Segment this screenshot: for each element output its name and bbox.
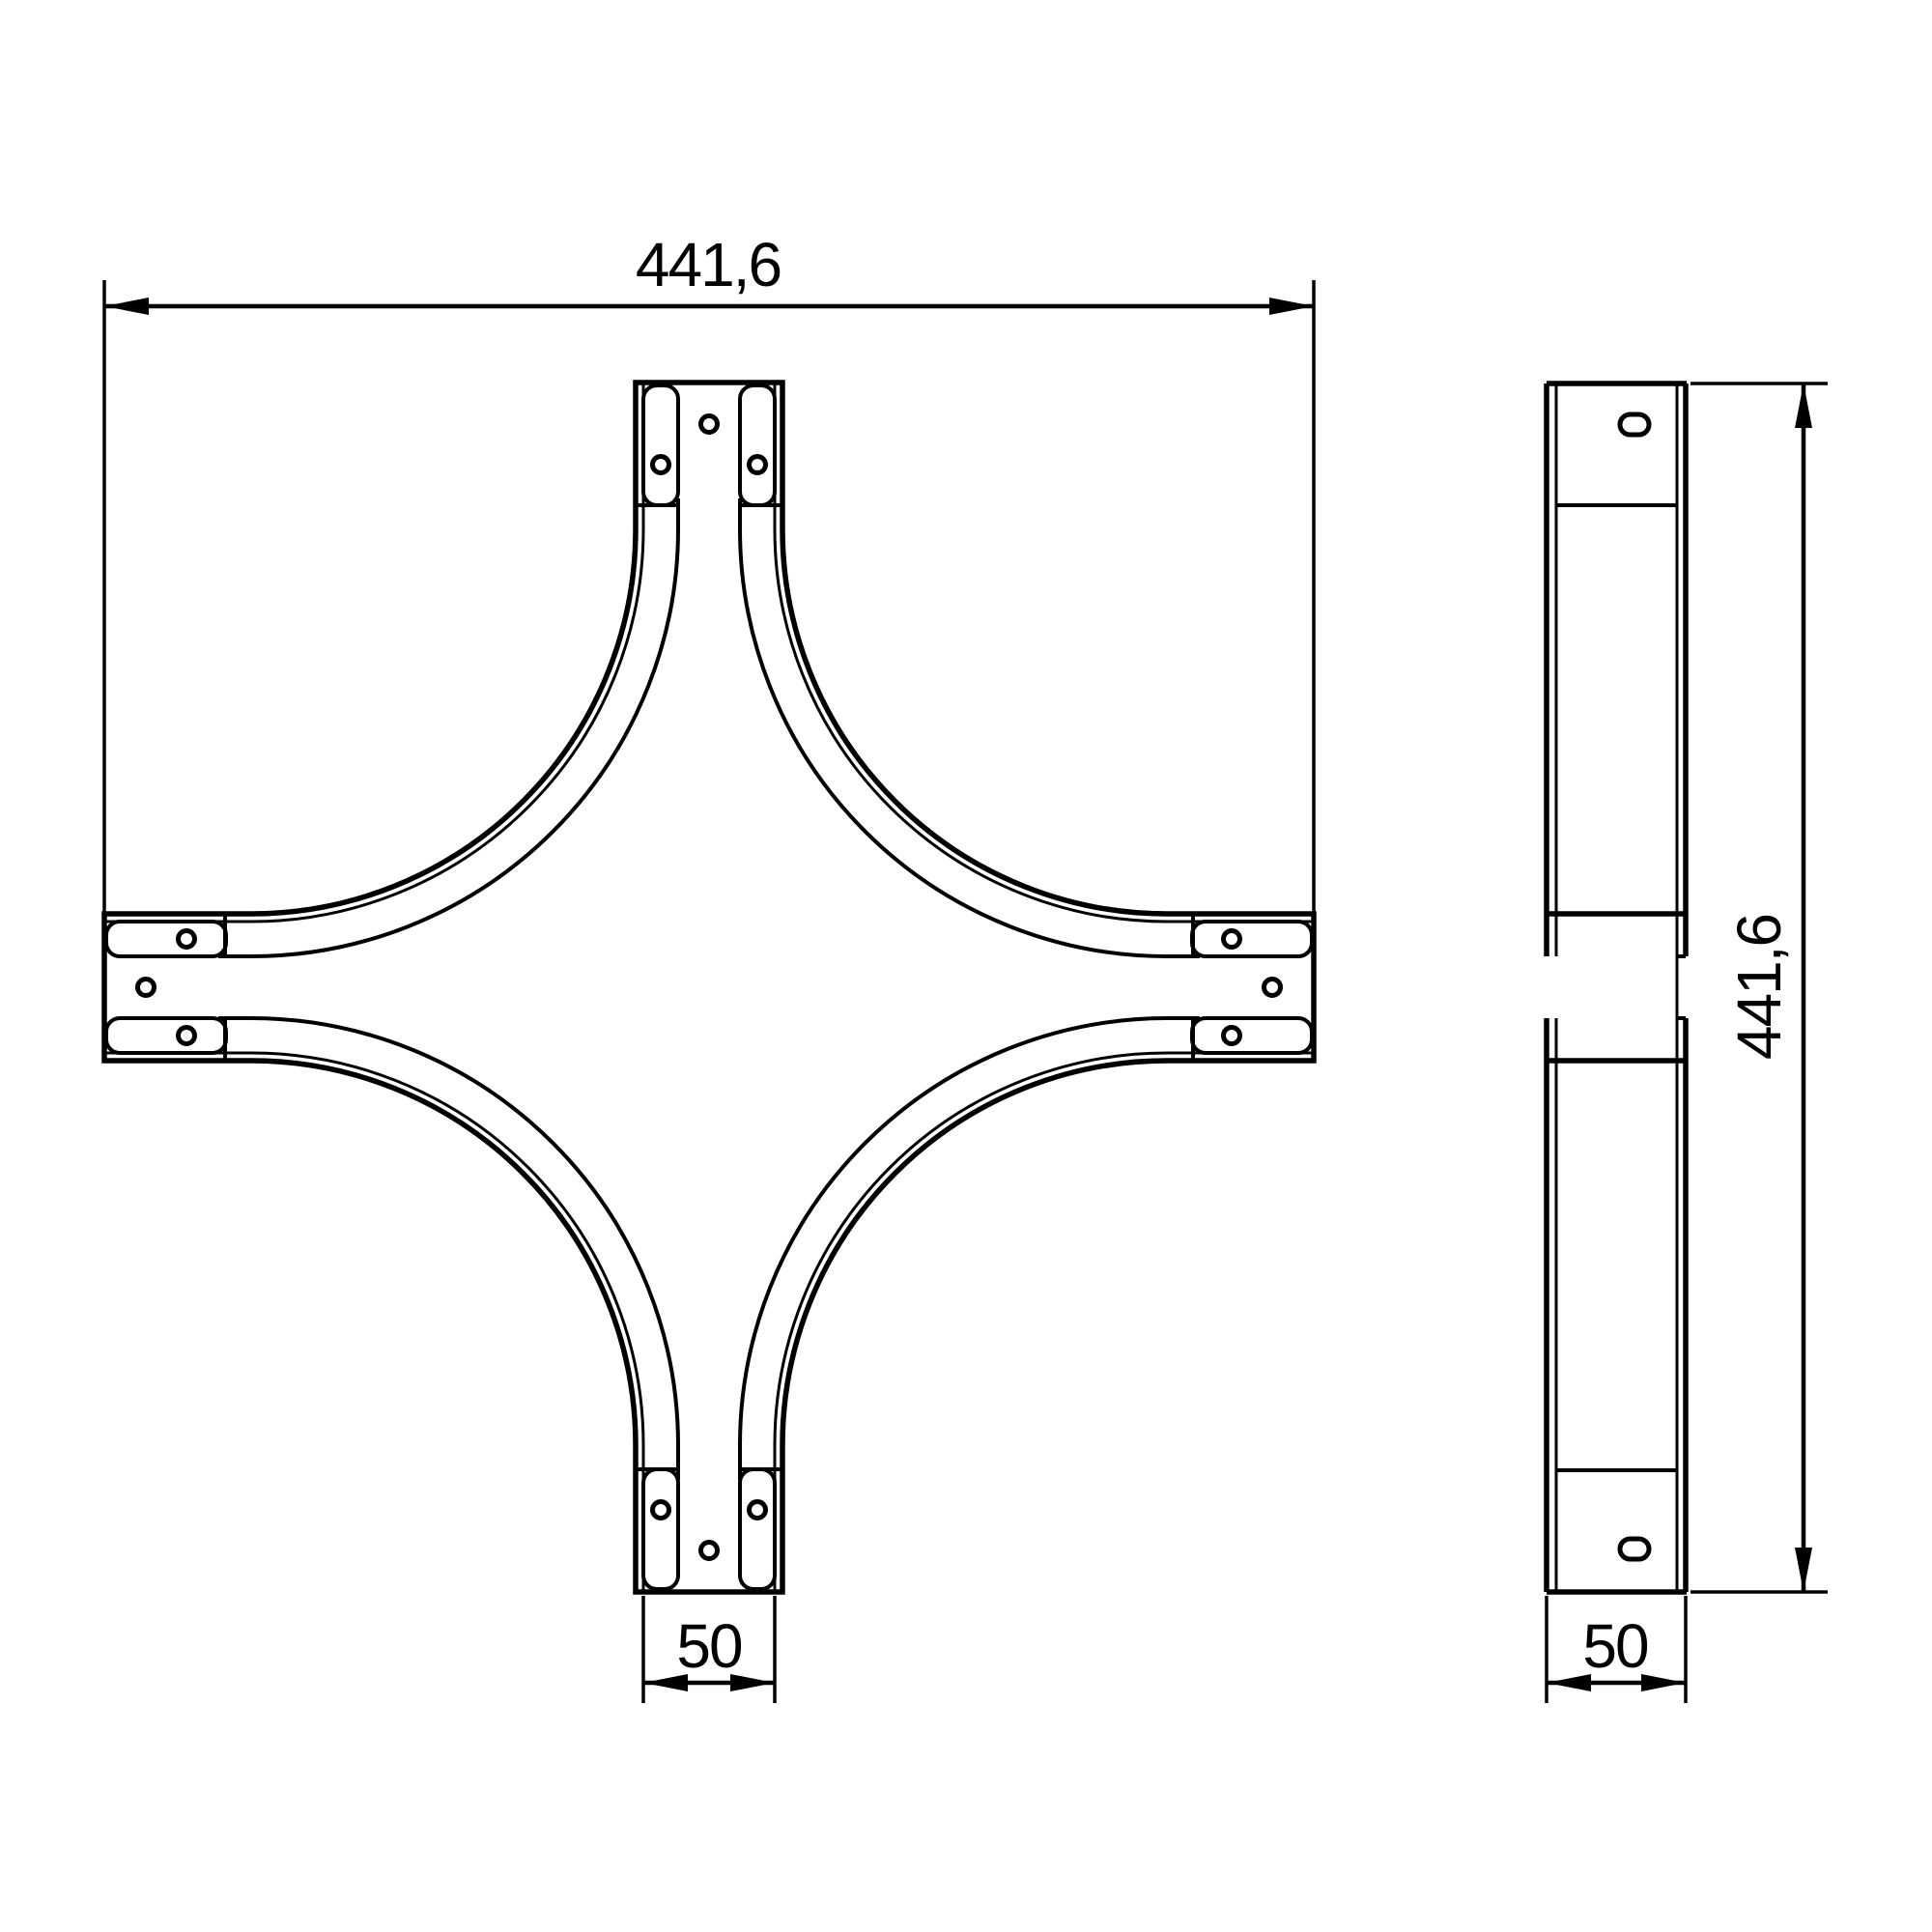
plan-curve-top-right	[740, 498, 1200, 956]
plan-tab	[643, 385, 678, 505]
plan-hole	[1264, 980, 1281, 996]
side-view	[1547, 384, 1687, 1592]
plan-hole	[138, 980, 155, 996]
plan-tab	[1192, 1018, 1312, 1053]
plan-inner-edge-top-left	[104, 383, 643, 922]
arrowhead-left	[104, 298, 149, 315]
plan-hole	[701, 1543, 718, 1559]
plan-tab	[643, 1469, 678, 1589]
plan-hole	[653, 457, 669, 473]
drawing-canvas: 441,6 50 441	[0, 0, 1932, 1932]
technical-drawing: 441,6 50 441	[0, 0, 1932, 1932]
plan-hole	[1224, 931, 1240, 948]
plan-dim-arm-width: 50	[643, 1596, 775, 1703]
side-dim-width: 50	[1547, 1596, 1686, 1703]
arrowhead-right	[1641, 1674, 1686, 1691]
plan-outer-outline	[104, 383, 1314, 1592]
plan-tab	[106, 922, 226, 956]
plan-tab	[1192, 922, 1312, 956]
side-slot-hole	[1620, 1539, 1649, 1559]
plan-dim-width: 441,6	[104, 230, 1314, 912]
dim-side-width-label: 50	[1582, 1611, 1648, 1681]
side-slot-hole	[1620, 414, 1649, 435]
plan-tab	[740, 1469, 775, 1589]
plan-hole	[653, 1502, 669, 1519]
plan-hole	[179, 931, 195, 948]
plan-hole	[701, 416, 718, 433]
dim-plan-width-label: 441,6	[636, 230, 781, 299]
plan-inner-edge-top-right	[775, 383, 1314, 922]
plan-hole	[179, 1028, 195, 1044]
plan-tab	[106, 1018, 226, 1053]
plan-tab	[740, 385, 775, 505]
plan-curve-bottom-left	[218, 1018, 678, 1480]
plan-curve-bottom-right	[740, 1018, 1200, 1480]
arrowhead-down	[1795, 1548, 1812, 1592]
dim-side-height-label: 441,6	[1724, 915, 1794, 1060]
arrowhead-right	[1269, 298, 1314, 315]
plan-hole	[750, 457, 766, 473]
plan-hole	[750, 1502, 766, 1519]
side-dim-height: 441,6	[1690, 384, 1828, 1592]
plan-hole	[1224, 1028, 1240, 1044]
dim-plan-arm-width-label: 50	[676, 1611, 742, 1681]
arrowhead-up	[1795, 384, 1812, 428]
plan-curve-top-left	[218, 498, 678, 956]
plan-view	[104, 383, 1314, 1592]
plan-inner-edge-bottom-left	[104, 1053, 643, 1592]
plan-inner-edge-bottom-right	[775, 1053, 1314, 1592]
